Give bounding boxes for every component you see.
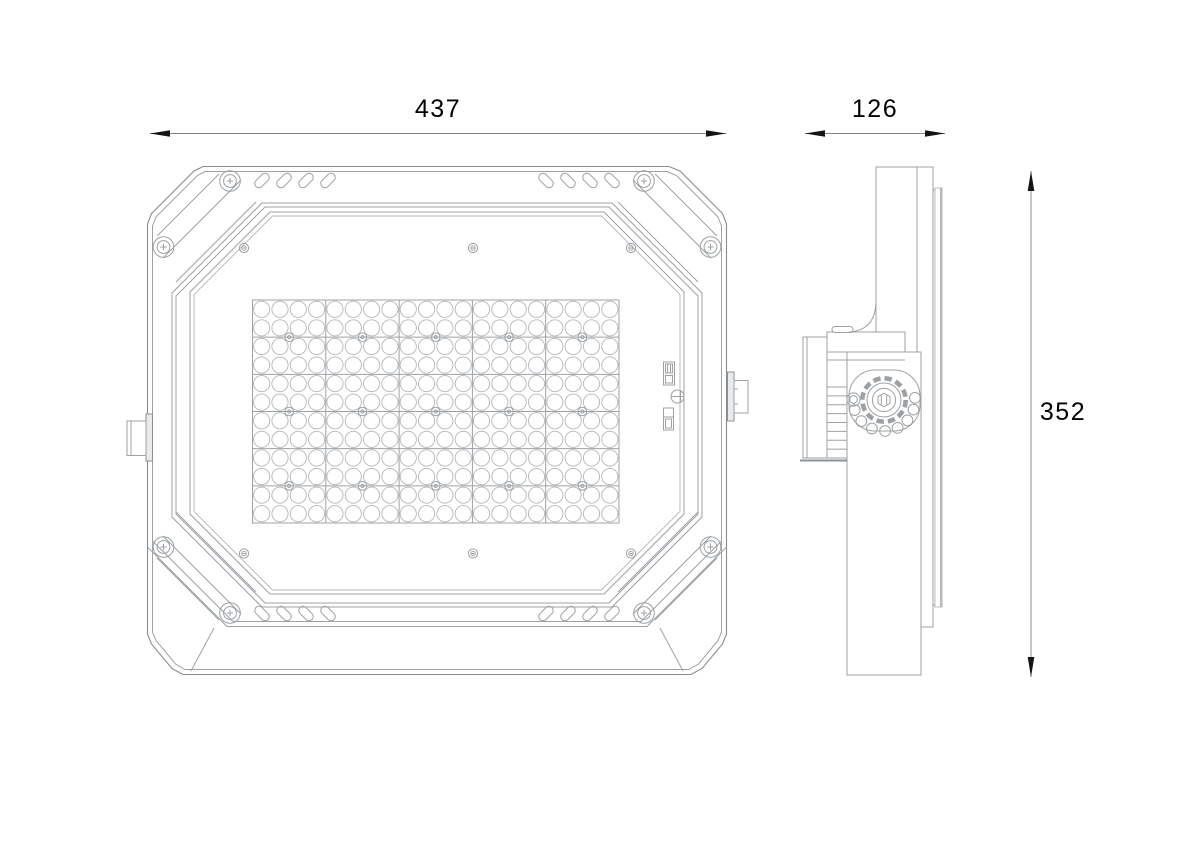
led-lens <box>602 431 618 447</box>
led-lens <box>272 376 288 392</box>
led-lens <box>455 468 471 484</box>
led-lens <box>254 376 270 392</box>
led-lens <box>254 357 270 373</box>
led-lens <box>437 338 453 354</box>
led-lens <box>455 320 471 336</box>
led-lens <box>528 394 544 410</box>
yoke-serrations <box>827 387 847 458</box>
led-lens <box>290 394 306 410</box>
led-lens <box>473 413 489 429</box>
led-lens <box>602 468 618 484</box>
led-lens <box>309 468 325 484</box>
led-lens <box>400 413 416 429</box>
led-lens <box>418 338 434 354</box>
led-lens <box>309 506 325 522</box>
led-lens <box>565 487 581 503</box>
led-lens <box>602 413 618 429</box>
led-lens <box>418 431 434 447</box>
led-lens <box>290 450 306 466</box>
led-lens <box>290 506 306 522</box>
led-lens <box>272 487 288 503</box>
led-lens <box>602 320 618 336</box>
led-lens <box>290 487 306 503</box>
led-lens <box>400 487 416 503</box>
led-lens <box>547 394 563 410</box>
led-panel <box>253 300 620 523</box>
led-lens <box>327 301 343 317</box>
led-lens <box>547 320 563 336</box>
led-lens <box>327 376 343 392</box>
led-lens <box>400 394 416 410</box>
led-lens <box>528 338 544 354</box>
bezel-slot <box>319 172 337 190</box>
led-lens <box>327 357 343 373</box>
led-lens <box>400 338 416 354</box>
led-lens <box>327 468 343 484</box>
led-lens <box>437 413 453 429</box>
led-lens <box>437 320 453 336</box>
led-lens <box>400 357 416 373</box>
bezel-bottom-edge-inner <box>153 541 722 622</box>
led-lens <box>382 487 398 503</box>
led-lens <box>364 320 380 336</box>
led-lens <box>528 468 544 484</box>
led-lens <box>400 301 416 317</box>
led-lens <box>492 357 508 373</box>
led-lens <box>565 301 581 317</box>
led-lens <box>528 357 544 373</box>
led-lens <box>602 394 618 410</box>
led-lens <box>473 301 489 317</box>
led-lens <box>382 450 398 466</box>
led-lens <box>254 431 270 447</box>
led-lens <box>455 301 471 317</box>
led-lens <box>400 376 416 392</box>
flange-diagonal-left <box>191 628 214 671</box>
led-lens <box>345 376 361 392</box>
cable-gland-left <box>127 414 153 461</box>
led-lens <box>455 357 471 373</box>
led-lens <box>272 431 288 447</box>
led-lens <box>437 376 453 392</box>
led-lens <box>290 431 306 447</box>
flange-diagonal-right <box>660 628 683 671</box>
led-lens <box>565 338 581 354</box>
dim-label-depth: 126 <box>852 95 898 123</box>
led-lens <box>400 320 416 336</box>
led-lens <box>309 431 325 447</box>
led-lens <box>309 487 325 503</box>
led-lens <box>510 450 526 466</box>
led-lens <box>418 413 434 429</box>
led-lens <box>602 338 618 354</box>
dim-label-width: 437 <box>415 95 461 123</box>
led-lens <box>492 468 508 484</box>
led-lens <box>473 506 489 522</box>
led-lens <box>254 450 270 466</box>
led-lens <box>345 301 361 317</box>
led-lens <box>492 413 508 429</box>
led-lens <box>437 301 453 317</box>
bezel-slot <box>275 172 293 190</box>
led-lens <box>437 468 453 484</box>
led-lens <box>528 506 544 522</box>
led-lens <box>272 338 288 354</box>
led-lens <box>583 487 599 503</box>
led-lens <box>418 487 434 503</box>
led-lens <box>455 506 471 522</box>
led-lens <box>254 506 270 522</box>
led-lens <box>455 394 471 410</box>
led-lens <box>510 357 526 373</box>
led-lens <box>583 468 599 484</box>
led-lens <box>382 506 398 522</box>
led-lens <box>418 506 434 522</box>
led-lens <box>565 376 581 392</box>
corner-strip-line <box>157 174 219 236</box>
led-lens <box>272 320 288 336</box>
led-lens <box>565 431 581 447</box>
corner-strip-line <box>655 558 717 620</box>
dim-label-height: 352 <box>1040 398 1086 426</box>
led-lens <box>290 376 306 392</box>
led-lens <box>510 376 526 392</box>
corner-strip-line <box>176 202 256 282</box>
led-lens <box>437 487 453 503</box>
led-lens <box>272 301 288 317</box>
bezel-slot <box>581 172 599 190</box>
led-lens <box>418 394 434 410</box>
led-lens <box>547 338 563 354</box>
gland-plate <box>146 414 153 461</box>
led-lens <box>547 450 563 466</box>
led-lens <box>602 357 618 373</box>
led-lens <box>473 394 489 410</box>
pivot-band <box>827 332 905 352</box>
led-lens <box>528 376 544 392</box>
led-lens <box>364 413 380 429</box>
dimension-arrow <box>706 130 726 137</box>
led-lens <box>327 320 343 336</box>
led-lens <box>492 506 508 522</box>
led-lens <box>547 413 563 429</box>
stub-plate <box>728 372 735 421</box>
corner-strip-line <box>618 202 698 282</box>
led-lens <box>473 376 489 392</box>
led-lens <box>602 301 618 317</box>
led-lens <box>473 487 489 503</box>
dimension-arrow <box>1028 657 1035 677</box>
led-lens <box>364 357 380 373</box>
led-lens <box>272 450 288 466</box>
dimension-arrow <box>805 130 825 137</box>
led-lens <box>345 450 361 466</box>
led-lens <box>364 301 380 317</box>
bezel-slot <box>603 172 621 190</box>
led-lens <box>547 301 563 317</box>
led-lens <box>364 338 380 354</box>
led-lens <box>418 301 434 317</box>
led-lens <box>272 394 288 410</box>
led-lens <box>309 357 325 373</box>
led-lens <box>510 320 526 336</box>
led-lens <box>473 320 489 336</box>
led-lens <box>583 431 599 447</box>
led-lens <box>327 413 343 429</box>
connector-fitting-base <box>666 376 673 384</box>
led-lens <box>437 394 453 410</box>
led-lens <box>364 394 380 410</box>
led-lens <box>400 468 416 484</box>
led-lens <box>309 320 325 336</box>
led-lens <box>492 487 508 503</box>
led-lens <box>565 450 581 466</box>
led-lens <box>418 450 434 466</box>
led-lens <box>309 450 325 466</box>
led-lens <box>510 301 526 317</box>
led-lens <box>528 487 544 503</box>
led-lens <box>473 431 489 447</box>
led-lens <box>492 301 508 317</box>
stub-body <box>734 381 748 414</box>
led-lens <box>400 431 416 447</box>
led-lens <box>254 301 270 317</box>
corner-strip-line <box>655 174 717 236</box>
led-lens <box>602 450 618 466</box>
led-lens <box>309 394 325 410</box>
side-view <box>800 167 942 675</box>
led-lens <box>565 394 581 410</box>
led-lens <box>364 468 380 484</box>
led-lens <box>382 413 398 429</box>
connector-fitting-head <box>666 364 673 373</box>
led-lens <box>382 338 398 354</box>
led-lens <box>327 450 343 466</box>
led-lens <box>382 301 398 317</box>
corner-strip-line <box>157 558 219 620</box>
led-lens <box>272 413 288 429</box>
led-lens <box>254 338 270 354</box>
led-lens <box>345 431 361 447</box>
led-lens <box>547 487 563 503</box>
led-lens <box>382 431 398 447</box>
led-lens <box>473 468 489 484</box>
bezel-slot <box>297 172 315 190</box>
led-lens <box>510 431 526 447</box>
led-lens <box>272 468 288 484</box>
led-lens <box>528 413 544 429</box>
led-lens <box>583 357 599 373</box>
led-lens <box>510 506 526 522</box>
led-lens <box>492 376 508 392</box>
led-lens <box>547 468 563 484</box>
led-lens <box>364 506 380 522</box>
led-lens <box>254 394 270 410</box>
led-lens <box>565 320 581 336</box>
led-lens <box>290 357 306 373</box>
led-lens <box>272 357 288 373</box>
corner-strip-line <box>176 512 256 592</box>
led-lens <box>345 357 361 373</box>
led-lens <box>364 487 380 503</box>
dimension-arrow <box>1028 171 1035 191</box>
led-lens <box>473 450 489 466</box>
led-lens <box>583 338 599 354</box>
led-lens <box>254 320 270 336</box>
led-lens <box>455 487 471 503</box>
led-lens <box>583 376 599 392</box>
led-lens <box>565 506 581 522</box>
plug-fitting-inner <box>666 419 672 428</box>
housing-fillet <box>849 300 876 332</box>
led-lens <box>400 450 416 466</box>
led-lens <box>345 468 361 484</box>
led-lens <box>418 376 434 392</box>
led-lens <box>382 376 398 392</box>
led-lens <box>345 338 361 354</box>
front-fittings <box>664 362 685 430</box>
led-lens <box>437 506 453 522</box>
front-view <box>127 167 748 675</box>
led-lens <box>345 320 361 336</box>
led-lens <box>309 413 325 429</box>
led-lens <box>345 487 361 503</box>
led-lens <box>254 413 270 429</box>
led-lens <box>364 450 380 466</box>
led-lens <box>455 338 471 354</box>
led-lens <box>382 394 398 410</box>
led-lens <box>272 506 288 522</box>
led-lens <box>290 320 306 336</box>
led-lens <box>528 301 544 317</box>
led-lens <box>327 506 343 522</box>
led-lens <box>492 320 508 336</box>
led-lens <box>309 376 325 392</box>
led-lens <box>327 487 343 503</box>
led-lens <box>345 413 361 429</box>
led-lens <box>583 450 599 466</box>
bezel-slot <box>253 172 271 190</box>
led-lens <box>583 413 599 429</box>
led-lens <box>400 506 416 522</box>
led-lens <box>309 338 325 354</box>
led-lens <box>254 487 270 503</box>
led-lens <box>492 394 508 410</box>
led-lens <box>547 506 563 522</box>
led-lens <box>254 468 270 484</box>
gland-body <box>127 421 146 456</box>
led-lens <box>547 357 563 373</box>
led-lens <box>290 468 306 484</box>
led-lens <box>473 338 489 354</box>
led-lens <box>455 450 471 466</box>
dimension-arrow <box>925 130 945 137</box>
led-lens <box>583 506 599 522</box>
dimension-arrow <box>150 130 170 137</box>
led-lens <box>382 468 398 484</box>
led-lens <box>547 376 563 392</box>
led-lens <box>327 431 343 447</box>
led-lens <box>565 468 581 484</box>
led-lens <box>583 394 599 410</box>
led-lens <box>345 506 361 522</box>
led-lens <box>437 357 453 373</box>
led-lens <box>583 320 599 336</box>
led-lens <box>492 338 508 354</box>
led-lens <box>602 376 618 392</box>
led-lens <box>345 394 361 410</box>
bezel-slot <box>559 172 577 190</box>
led-lens <box>565 357 581 373</box>
led-lens <box>510 487 526 503</box>
led-lens <box>455 376 471 392</box>
led-lens <box>418 320 434 336</box>
led-lens <box>602 506 618 522</box>
bezel-slot <box>537 172 555 190</box>
led-lens <box>364 376 380 392</box>
led-lens <box>510 468 526 484</box>
led-lens <box>510 338 526 354</box>
led-lens <box>382 357 398 373</box>
led-lens <box>583 301 599 317</box>
led-lens <box>290 413 306 429</box>
led-lens <box>473 357 489 373</box>
led-lens <box>492 431 508 447</box>
led-lens <box>528 431 544 447</box>
led-lens <box>290 338 306 354</box>
led-lens <box>437 431 453 447</box>
led-lens <box>565 413 581 429</box>
led-lens <box>528 320 544 336</box>
technical-drawing-canvas: 437 126 352 <box>0 0 1191 842</box>
led-lens <box>547 431 563 447</box>
led-lens <box>418 357 434 373</box>
led-lens <box>528 450 544 466</box>
led-lens <box>455 431 471 447</box>
led-lens <box>510 413 526 429</box>
pivot-stub-right <box>728 372 749 421</box>
led-lens <box>327 394 343 410</box>
led-lens <box>510 394 526 410</box>
led-lens <box>455 413 471 429</box>
led-lens <box>290 301 306 317</box>
led-lens <box>309 301 325 317</box>
led-lens <box>327 338 343 354</box>
led-lens <box>437 450 453 466</box>
led-lens <box>382 320 398 336</box>
led-lens <box>418 468 434 484</box>
led-lens <box>492 450 508 466</box>
led-lens <box>364 431 380 447</box>
led-lens <box>602 487 618 503</box>
